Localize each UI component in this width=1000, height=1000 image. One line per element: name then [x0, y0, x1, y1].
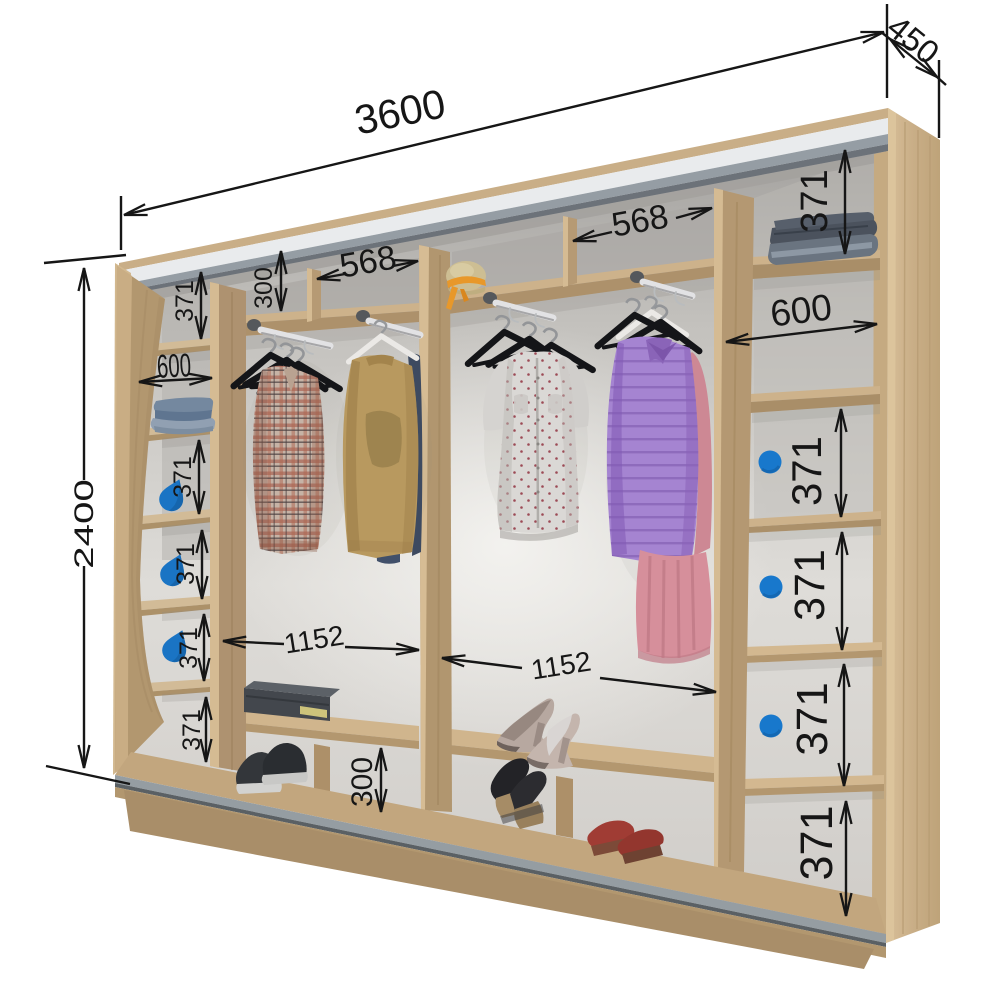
svg-text:600: 600: [768, 286, 834, 334]
svg-text:2400: 2400: [69, 479, 99, 569]
svg-text:371: 371: [791, 805, 842, 880]
svg-text:300: 300: [250, 267, 278, 309]
svg-text:371: 371: [788, 682, 837, 755]
svg-text:371: 371: [169, 456, 197, 498]
svg-text:371: 371: [783, 436, 830, 506]
svg-text:600: 600: [156, 346, 192, 385]
svg-text:371: 371: [786, 549, 834, 621]
svg-text:371: 371: [794, 169, 836, 232]
svg-text:371: 371: [178, 709, 206, 751]
svg-text:300: 300: [346, 757, 379, 807]
svg-text:371: 371: [172, 543, 200, 585]
svg-text:371: 371: [175, 627, 203, 669]
svg-text:371: 371: [171, 280, 199, 322]
